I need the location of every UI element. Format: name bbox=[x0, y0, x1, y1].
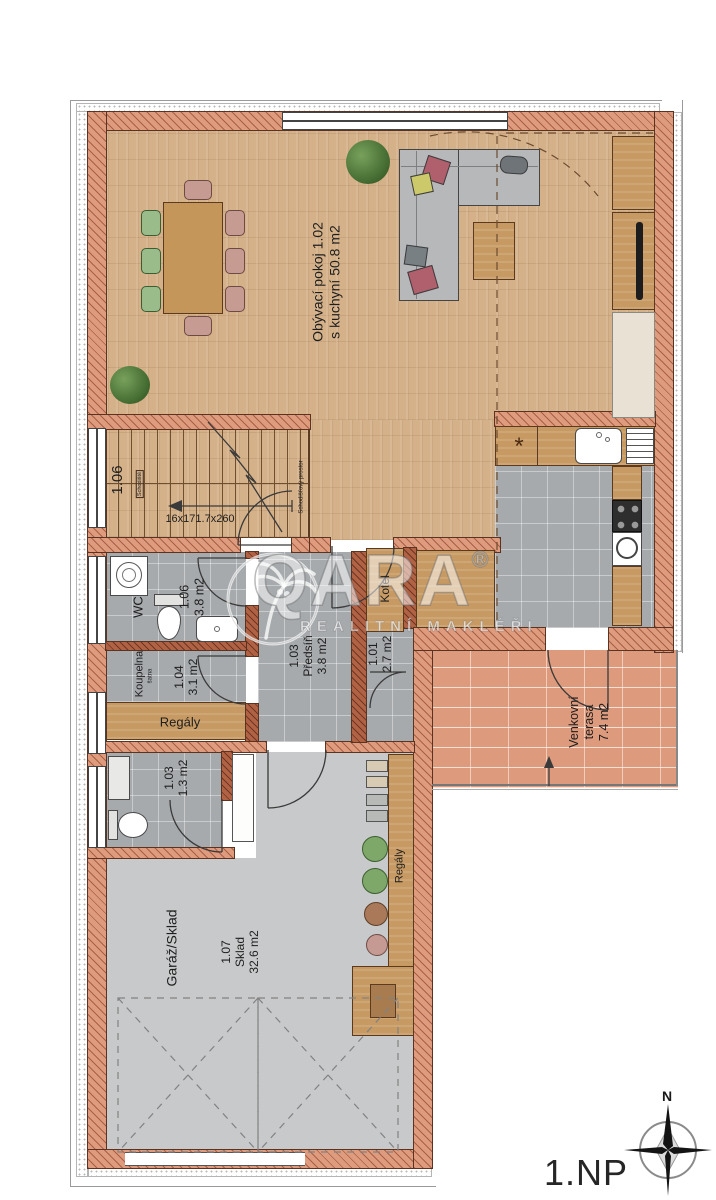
kitchen-cabinet-right-2 bbox=[612, 566, 642, 626]
dining-chair bbox=[225, 286, 245, 312]
wall-terrace-top-b bbox=[609, 628, 673, 650]
dish-drainer bbox=[626, 428, 654, 464]
small-wc-toilet-bowl bbox=[118, 812, 148, 838]
shelf-box bbox=[366, 776, 388, 788]
plant-pot bbox=[366, 934, 388, 956]
site-outline-top bbox=[70, 100, 662, 101]
bathroom-shelf-label: Regály bbox=[160, 715, 200, 730]
garage-name: Garáž/Sklad bbox=[164, 909, 181, 986]
wall-small-wc-right bbox=[222, 752, 232, 800]
compass-rose bbox=[622, 1102, 714, 1198]
insulation-right bbox=[673, 112, 682, 652]
hall-name: Předsíň bbox=[301, 635, 315, 676]
site-outline-left bbox=[70, 100, 71, 1187]
wc-name: WC bbox=[130, 596, 145, 618]
dining-chair bbox=[141, 286, 161, 312]
stove bbox=[612, 500, 642, 532]
terrace-edge-line-1 bbox=[432, 784, 678, 786]
oven-door-circle bbox=[616, 537, 638, 559]
plant-pot bbox=[362, 836, 388, 862]
wall-garage-top-b bbox=[326, 742, 414, 752]
watermark-tagline: REALITNÍ MAKLÉŘI bbox=[300, 618, 538, 635]
plant-pot bbox=[364, 902, 388, 926]
shelf-box bbox=[366, 760, 388, 772]
compass: N bbox=[622, 1088, 714, 1198]
bathroom-area: 3.1 m2 bbox=[186, 659, 200, 696]
wc-number: 1.06 bbox=[177, 578, 192, 616]
door-panel bbox=[232, 754, 254, 842]
plant bbox=[110, 366, 150, 404]
bathroom-note: šatna bbox=[147, 669, 154, 684]
tv-sideboard bbox=[612, 212, 655, 310]
dining-chair bbox=[141, 248, 161, 274]
small-wc-area: 1.3 m2 bbox=[176, 760, 190, 797]
living-room-name: Obývací pokoj 1.02 bbox=[309, 222, 326, 342]
terrace-floor bbox=[432, 650, 678, 788]
dining-table bbox=[163, 202, 223, 314]
plant bbox=[346, 140, 390, 184]
insulation-left bbox=[76, 111, 88, 1177]
faucet-dot-1 bbox=[596, 432, 602, 438]
shelf-box bbox=[366, 810, 388, 822]
dining-chair bbox=[225, 210, 245, 236]
floor-title: 1.NP bbox=[544, 1152, 628, 1194]
small-wc-cabinet bbox=[108, 756, 130, 800]
window-left-1 bbox=[88, 428, 106, 528]
wall-stairs-bottom-a bbox=[88, 538, 240, 552]
terrace-edge-line-2 bbox=[432, 789, 678, 790]
window-left-4 bbox=[88, 766, 106, 848]
terrace-label: Venkovní terasa 7.4 m2 bbox=[567, 696, 611, 747]
stairs-note-2: Schodišťový prostor bbox=[298, 460, 305, 513]
wall-small-wc-bottom bbox=[88, 848, 234, 858]
small-wc-label: 1.03 1.3 m2 bbox=[162, 760, 190, 797]
stairs-right-edge bbox=[308, 420, 310, 538]
dining-chair bbox=[225, 248, 245, 274]
tv-screen bbox=[636, 222, 643, 300]
kitchen-cabinet-right-1 bbox=[612, 466, 642, 500]
hob-marker: * bbox=[514, 433, 523, 461]
washing-machine-drum-inner bbox=[122, 568, 136, 582]
wall-stairs-top bbox=[88, 415, 310, 429]
garage-number-label: 1.07 Sklad 32.6 m2 bbox=[219, 930, 261, 973]
small-wc-number: 1.03 bbox=[162, 760, 176, 797]
tv-wall-cabinet bbox=[612, 136, 655, 210]
stairs-steps: 16x171.7x260 bbox=[165, 513, 234, 525]
small-wc-toilet-tank bbox=[108, 810, 118, 840]
floor-plan: * bbox=[0, 0, 716, 1200]
dining-chair bbox=[184, 316, 212, 336]
stair-lobby-floor bbox=[310, 420, 495, 540]
bathroom-name: Koupelna bbox=[134, 651, 147, 698]
garage-type: Sklad bbox=[233, 930, 247, 973]
wall-wc-bath-divider bbox=[106, 642, 246, 650]
watermark-brand: QARA® bbox=[252, 540, 490, 622]
insulation-bottom bbox=[88, 1168, 432, 1177]
window-left-2 bbox=[88, 556, 106, 644]
watermark-registered-mark: ® bbox=[472, 547, 490, 572]
stairs-note: Schodiště bbox=[137, 471, 143, 497]
faucet-dot-2 bbox=[605, 437, 610, 442]
plant-pot bbox=[362, 868, 388, 894]
living-room-area: s kuchyní 50.8 m2 bbox=[326, 222, 343, 342]
boiler-room-area: 2.7 m2 bbox=[380, 636, 394, 673]
window-top bbox=[282, 112, 508, 130]
shelf-box bbox=[366, 794, 388, 806]
boiler-room-number: 1.01 bbox=[366, 636, 380, 673]
wc-area: 3.8 m2 bbox=[192, 578, 207, 616]
boiler-room-label: 1.01 2.7 m2 bbox=[366, 636, 394, 673]
wc-sink-drain bbox=[214, 626, 220, 632]
workbench-item bbox=[370, 984, 396, 1018]
wc-number-label: 1.06 3.8 m2 bbox=[177, 578, 207, 616]
kitchen-counter-divider bbox=[537, 426, 538, 466]
site-outline-bottom bbox=[70, 1186, 436, 1187]
dining-chair bbox=[184, 180, 212, 200]
sideboard-light bbox=[612, 312, 655, 418]
wall-garage-top-a bbox=[88, 742, 266, 752]
bathroom-number-label: 1.04 3.1 m2 bbox=[172, 659, 200, 696]
bathroom-number: 1.04 bbox=[172, 659, 186, 696]
wall-right bbox=[655, 112, 673, 652]
wall-garage-terrace-right bbox=[414, 650, 432, 1168]
hall-number: 1.03 bbox=[287, 635, 301, 676]
garage-area: 32.6 m2 bbox=[247, 930, 261, 973]
compass-north-label: N bbox=[662, 1088, 672, 1104]
insulation-top bbox=[76, 103, 660, 112]
sofa-pillow bbox=[499, 155, 528, 175]
garage-number: 1.07 bbox=[219, 930, 233, 973]
garage-door-opening bbox=[125, 1152, 305, 1166]
terrace-name-1: Venkovní bbox=[567, 696, 582, 747]
living-room-label: Obývací pokoj 1.02 s kuchyní 50.8 m2 bbox=[309, 222, 342, 342]
site-outline-right bbox=[682, 100, 683, 653]
hall-area: 3.8 m2 bbox=[315, 635, 329, 676]
hall-label: 1.03 Předsíň 3.8 m2 bbox=[287, 635, 329, 676]
window-left-3 bbox=[88, 692, 106, 754]
garage-shelf-label: Regály bbox=[394, 849, 407, 883]
terrace-area: 7.4 m2 bbox=[596, 696, 611, 747]
terrace-edge-right bbox=[676, 650, 678, 786]
watermark-brand-text: QARA bbox=[252, 541, 472, 621]
stairs-number: 1.06 bbox=[109, 465, 127, 494]
sofa-pillow bbox=[404, 245, 429, 268]
terrace-name-2: terasa bbox=[582, 696, 597, 747]
coffee-table bbox=[473, 222, 515, 280]
sofa-pillow bbox=[410, 172, 434, 196]
dining-chair bbox=[141, 210, 161, 236]
